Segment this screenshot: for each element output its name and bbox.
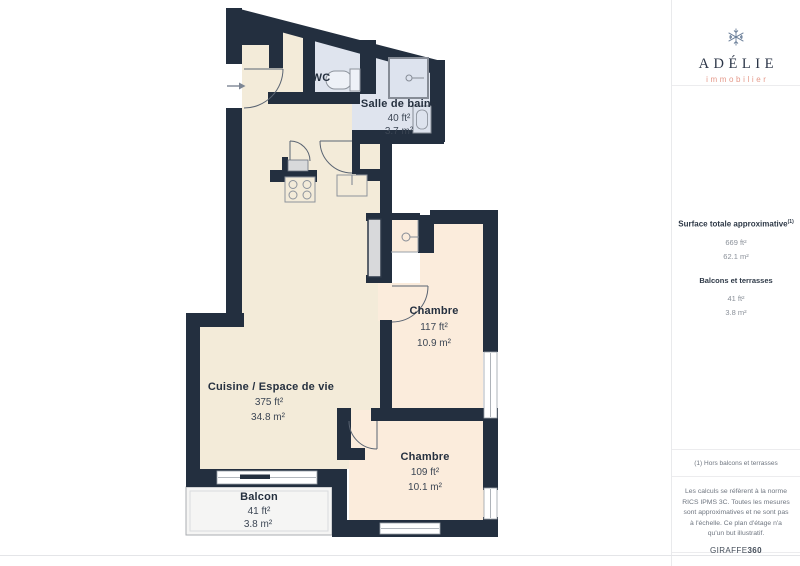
bathroom-area-m: 3.7 m² (385, 126, 414, 137)
stove-icon (285, 177, 315, 202)
balcony-area-m: 3.8 m² (244, 519, 273, 530)
window-bottom (380, 523, 440, 534)
living-area-ft: 375 ft² (255, 397, 284, 408)
bedroom2-label: Chambre (400, 451, 449, 463)
surface-total-m: 62.1 m² (672, 252, 800, 261)
brand-subtitle: immobilier (672, 75, 800, 84)
kitchen-sink-icon (337, 175, 367, 196)
disclaimer-block: Les calculs se réfèrent à la norme RICS … (672, 477, 800, 553)
bedroom2-area-ft: 109 ft² (411, 467, 440, 478)
living-label: Cuisine / Espace de vie (208, 381, 334, 393)
page-bottom-divider (0, 555, 800, 556)
surface-summary: Surface totale approximative(1) 669 ft² … (672, 86, 800, 450)
snowflake-icon (726, 27, 746, 47)
balcony-label: Balcon (240, 491, 278, 503)
balcony-terrace-ft: 41 ft² (672, 294, 800, 303)
balcony-terrace-m: 3.8 m² (672, 308, 800, 317)
surface-total-title: Surface totale approximative(1) (672, 219, 800, 229)
disclaimer-text: Les calculs se réfèrent à la norme RICS … (681, 487, 791, 540)
bathroom-sink-icon (413, 106, 431, 133)
window-bedroom1 (484, 352, 497, 418)
footnote: (1) Hors balcons et terrasses (672, 450, 800, 477)
window-bedroom2 (484, 488, 497, 519)
toilet-icon (326, 69, 360, 91)
living-area-m: 34.8 m² (251, 412, 286, 423)
sidebar: ADÉLIE immobilier Surface totale approxi… (671, 0, 800, 566)
brand-logo: ADÉLIE immobilier (672, 0, 800, 86)
closet-floor (391, 220, 418, 252)
kitchen-counter (288, 160, 308, 171)
bathroom-area-ft: 40 ft² (388, 113, 411, 124)
window-balcony-slider (217, 471, 317, 484)
bedroom1-doorway-floor (378, 283, 392, 321)
brand-name: ADÉLIE (672, 56, 800, 73)
bedroom1-area-m: 10.9 m² (417, 338, 452, 349)
bathroom-label: Salle de bains (361, 98, 437, 110)
floorplan-page: WC Salle de bains 40 ft² 3.7 m² Chambre … (0, 0, 800, 566)
bedroom1-label: Chambre (409, 305, 458, 317)
shower-icon (389, 58, 428, 98)
balcony-terrace-title: Balcons et terrasses (672, 276, 800, 285)
bedroom1-area-ft: 117 ft² (420, 322, 448, 333)
surface-total-ft: 669 ft² (672, 238, 800, 247)
wardrobe (368, 219, 381, 277)
balcony-area-ft: 41 ft² (248, 506, 271, 517)
bedroom2-area-m: 10.1 m² (408, 482, 443, 493)
surface-title-superscript: (1) (788, 219, 794, 225)
wc-label: WC (312, 72, 331, 84)
giraffe360-credit: GIRAFFE360 (681, 546, 791, 555)
